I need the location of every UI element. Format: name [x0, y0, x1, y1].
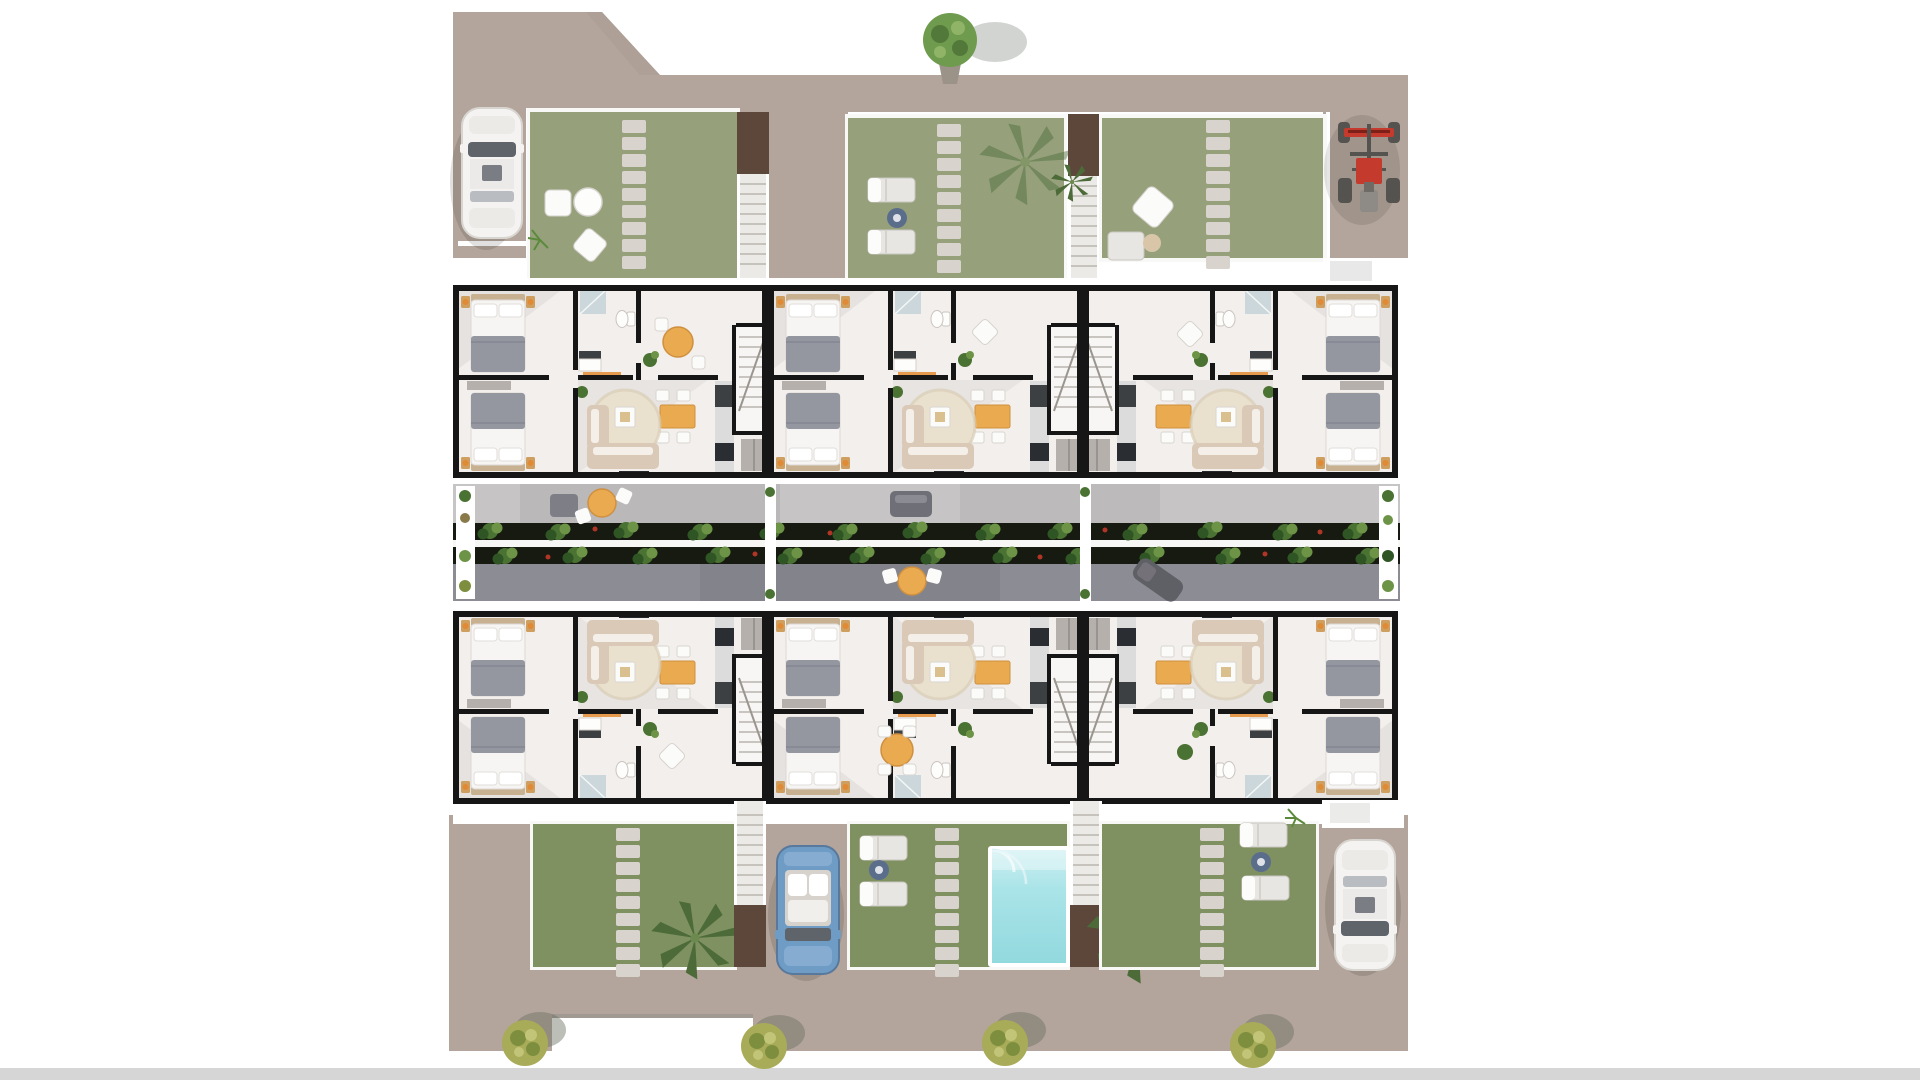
site-plan-render: [0, 0, 1920, 1080]
apartment-unit-top-2: [768, 285, 1083, 478]
apartment-unit-bottom-2: [768, 611, 1083, 804]
car-bottom-center: [768, 846, 844, 981]
swimming-pool: [988, 846, 1070, 967]
stepping-stones-top-3: [1206, 120, 1230, 269]
garden-bottom-1: [530, 821, 739, 979]
garden-bottom-2: [847, 821, 1070, 977]
shrub-2: [741, 1023, 787, 1069]
terrace-separator-mid-1: [765, 484, 776, 601]
plant-bottom-3: [1177, 744, 1193, 760]
apartment-unit-bottom-1: [453, 611, 768, 804]
terrace-separator-mid-2: [1080, 484, 1091, 601]
terrace-sofa-upper-2: [890, 491, 932, 517]
apartment-unit-bottom-3: [1083, 611, 1398, 804]
central-terrace: [453, 484, 1400, 605]
entry-patio-bottom-right: [1322, 800, 1404, 828]
terrace-separator-right: [1379, 486, 1398, 599]
shrub-3: [982, 1020, 1028, 1066]
stepping-stones-top-1: [622, 120, 646, 269]
walkway-top: [453, 278, 1400, 286]
garden-top-1: [527, 108, 740, 281]
entry-patio-top-right: [1323, 258, 1408, 286]
car-bottom-right: [1325, 840, 1401, 976]
terrace-divider: [453, 540, 1400, 547]
stepping-stones-bottom-3: [1200, 828, 1224, 977]
shrub-1: [502, 1020, 548, 1066]
shrub-4: [1230, 1022, 1276, 1068]
garden-top-3: [1099, 114, 1327, 269]
stepping-stones-top-2: [937, 124, 961, 273]
buggy-top-right: [1324, 115, 1400, 225]
curb-line: [552, 1014, 753, 1018]
garden-top-2: [845, 114, 1071, 281]
terrace-separator-left: [456, 486, 475, 599]
stepping-stones-bottom-2: [935, 828, 959, 977]
apartment-unit-top-3: [1083, 285, 1398, 478]
stepping-stones-bottom-1: [616, 828, 640, 977]
car-top-left: [450, 108, 524, 250]
stairs-bottom-2: [1070, 801, 1102, 967]
street-tree-top: [923, 13, 1027, 84]
stairs-top-1: [737, 112, 769, 278]
bottom-gray-bar: [0, 1068, 1920, 1080]
apartment-unit-top-1: [453, 285, 768, 478]
garden-bottom-3: [1099, 809, 1319, 977]
stairs-bottom-1: [734, 801, 766, 967]
site-plan-svg: [0, 0, 1920, 1080]
